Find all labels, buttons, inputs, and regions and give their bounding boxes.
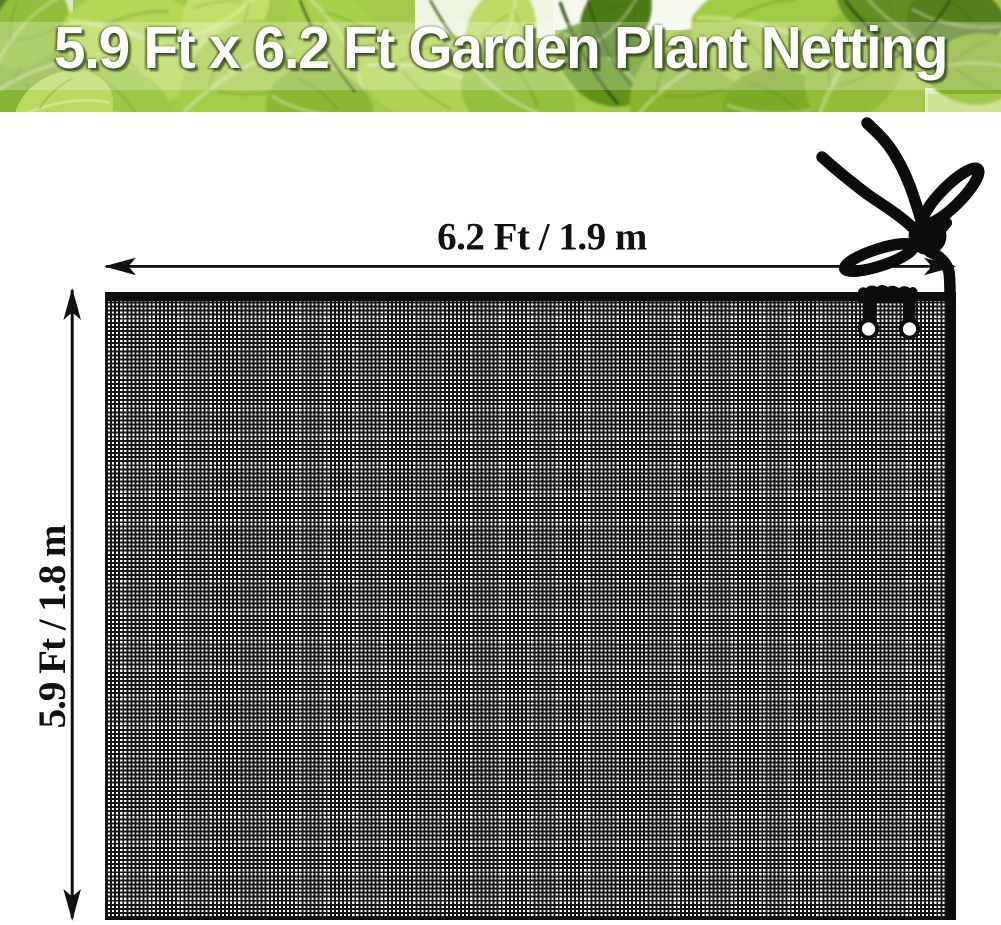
svg-text:6.2 Ft / 1.9 m: 6.2 Ft / 1.9 m (437, 216, 647, 259)
svg-text:5.9 Ft / 1.8 m: 5.9 Ft / 1.8 m (31, 525, 74, 728)
